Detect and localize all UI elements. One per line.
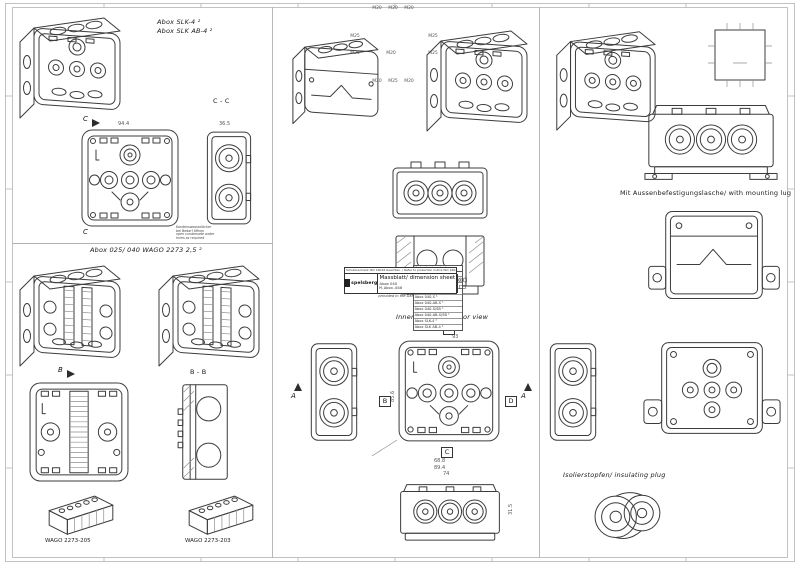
cut-letter-c-bottom: C — [83, 228, 88, 236]
view-marker-c: C — [441, 447, 453, 458]
section-arrow-icon — [92, 119, 100, 127]
knockout-label: M20 — [383, 51, 399, 56]
knockout-label: M25 — [347, 51, 363, 56]
variant-row: Abox SLK AB-4 ² — [414, 325, 462, 330]
protection-notice: Schutzvermerk ISO 16016 beachten. / Refe… — [346, 268, 456, 273]
interior-front-view-main — [397, 338, 501, 444]
cut-letter-b: B — [58, 366, 63, 374]
title-block: Schutzvermerk ISO 16016 beachten. / Refe… — [344, 267, 457, 294]
section-view-bb — [177, 381, 233, 483]
knockout-label: M20 — [369, 6, 385, 11]
front-view-slk-interior — [80, 127, 180, 229]
dimension-sheet: Abox SLK-4 ² Abox SLK AB-4 ² C 94.4 C C … — [0, 0, 800, 565]
view-marker-b: B — [379, 396, 391, 407]
logo-grid-icon — [344, 279, 350, 287]
side-view-left — [305, 340, 363, 444]
iso-view-wago-box-1 — [6, 253, 126, 367]
dim-lug-height: 31.5 — [508, 504, 514, 515]
knockout-label: M20 — [369, 79, 385, 84]
section-view-cc — [202, 127, 256, 229]
caption-abox-slk4: Abox SLK-4 ² — [157, 18, 200, 26]
section-arrow-icon — [67, 370, 75, 378]
knockout-plan-labels: M20 M20 M20 M25 M25 M25 M25 M20 M20 M25 … — [343, 3, 431, 91]
view-marker-d: D — [505, 396, 517, 407]
knockout-label: M25 — [425, 34, 441, 39]
interior-view-with-mounting-lug — [638, 334, 786, 442]
wago-connector-2273-203 — [180, 487, 262, 537]
condensate-note: Kondenswasserlöcher bei Bedarf öffnen op… — [176, 226, 218, 240]
side-view-three-knockouts-bottom — [396, 477, 504, 547]
knockout-label: M25 — [347, 34, 363, 39]
knockout-label: M20 — [401, 79, 417, 84]
knockout-label: M20 — [401, 6, 417, 11]
knockout-label: M25 — [425, 51, 441, 56]
knockout-label: M20 — [385, 6, 401, 11]
caption-abox-slk-ab4: Abox SLK AB-4 ² — [157, 27, 212, 35]
product-name: Abox 040 — [380, 282, 456, 286]
front-view-wago-interior — [28, 381, 130, 483]
caption-insulating-plug: Isolierstopfen/ insulating plug — [563, 471, 666, 479]
sheet-symbol-icon — [459, 285, 466, 289]
knockout-plan-diagram — [703, 16, 777, 90]
cut-letter-a-right: A — [521, 392, 526, 400]
wago-connector-2273-205 — [40, 487, 122, 537]
projection-symbol-icon — [458, 277, 467, 283]
company-logo: spelsberg — [345, 274, 378, 293]
side-view-with-mounting-lug — [643, 98, 779, 182]
side-view-right — [544, 340, 602, 444]
section-arrow-icon — [294, 383, 302, 391]
insulating-plug-detail — [583, 483, 671, 545]
label-wago-203: WAGO 2273-203 — [185, 538, 231, 544]
iso-view-wago-box-2 — [145, 253, 265, 367]
document-title: Massblatt/ dimension sheet — [380, 275, 456, 281]
cut-letter-c-top: C — [83, 115, 88, 123]
label-section-bb: B - B — [190, 368, 206, 376]
dim-bottom-inner: 68.8 — [434, 458, 445, 464]
section-arrow-icon — [524, 383, 532, 391]
cut-letter-a-left: A — [291, 392, 296, 400]
iso-view-open-box-slk — [6, 4, 126, 120]
logo-text: spelsberg — [351, 281, 377, 286]
document-number: M-Abox-040 — [380, 286, 456, 290]
top-view-three-knockouts — [389, 156, 491, 228]
label-section-cc: C - C — [213, 97, 230, 105]
caption-mounting-lug: Mit Aussenbefestigungslasche/ with mount… — [620, 189, 791, 197]
knockout-label: M25 — [385, 79, 401, 84]
front-view-with-mounting-lug — [643, 203, 785, 307]
label-wago-205: WAGO 2273-205 — [45, 538, 91, 544]
